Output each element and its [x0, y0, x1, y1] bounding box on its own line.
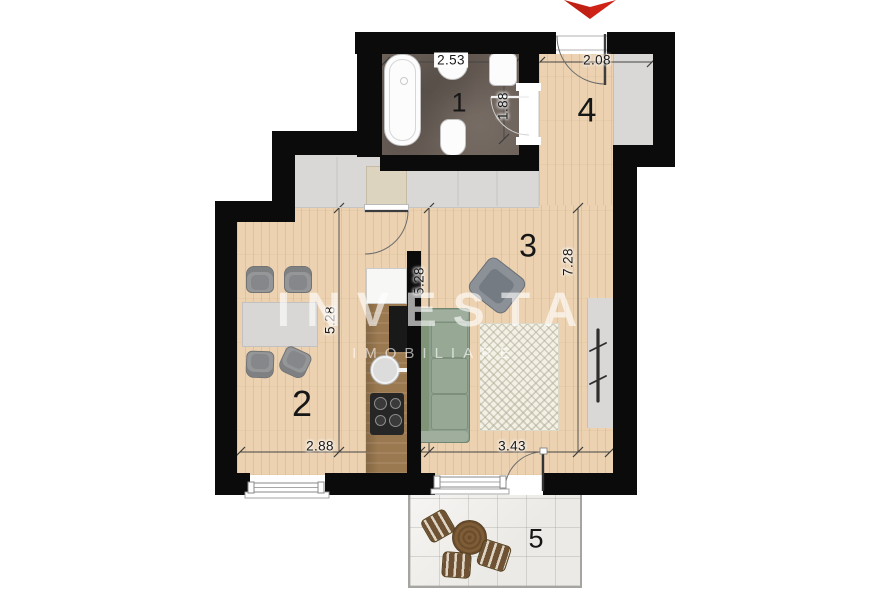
- dimension-label: 7.28: [561, 248, 576, 276]
- room-label-balcony: 5: [528, 524, 543, 555]
- dimension-label: 2.88: [306, 439, 334, 454]
- doors-and-windows: [0, 0, 880, 593]
- entrance-arrow-icon: [562, 0, 618, 20]
- dimension-label: 2.53: [434, 53, 468, 68]
- dimension-label: 1.88: [496, 92, 511, 120]
- dimension-label: 2.08: [583, 53, 611, 68]
- dimension-label: 5.28: [323, 306, 338, 334]
- room-label-kitchen: 2: [292, 383, 312, 425]
- room-label-living: 3: [519, 228, 537, 265]
- dimension-label: 5.28: [412, 267, 427, 295]
- room-label-hallway: 4: [578, 92, 597, 131]
- floor-plan: 1 2 3 4 5 2.53 2.08 1.88 5.28 5.28 7.28 …: [0, 0, 880, 593]
- dimension-label: 3.43: [498, 439, 526, 454]
- room-label-bathroom: 1: [451, 88, 466, 119]
